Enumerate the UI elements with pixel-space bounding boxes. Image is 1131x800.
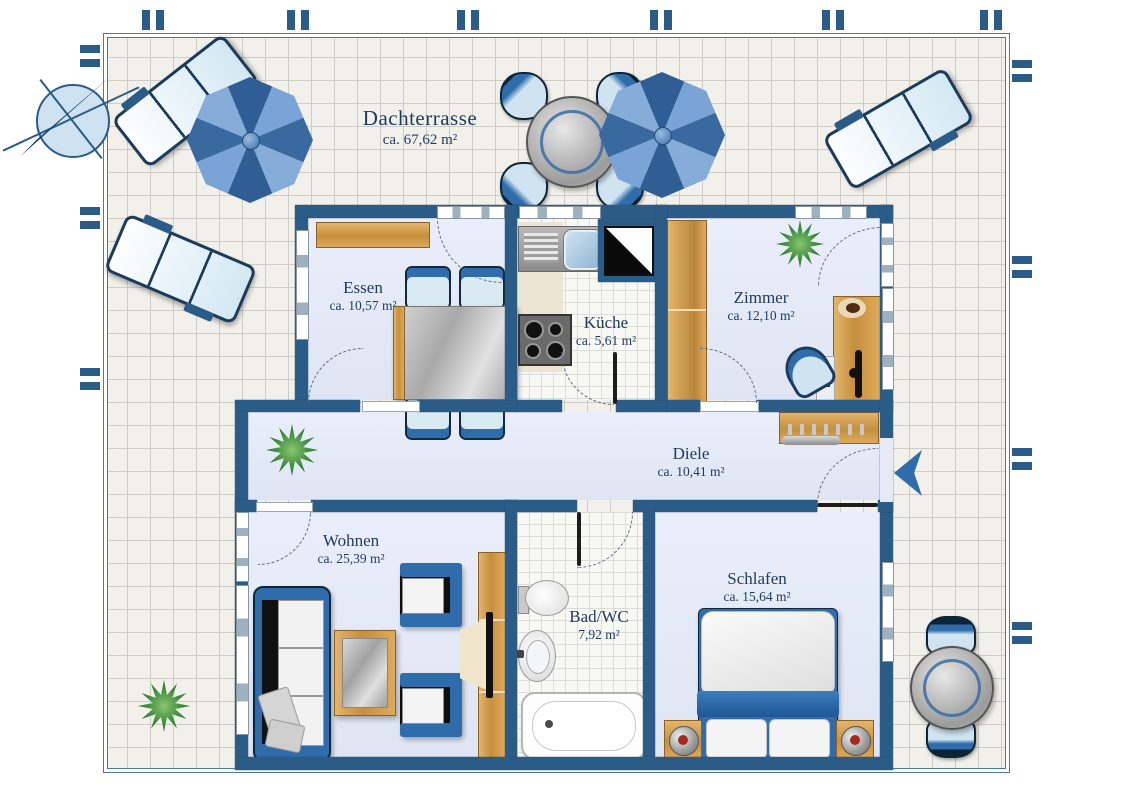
label-essen: Essen ca. 10,57 m² [329,277,396,315]
lamp [850,735,860,745]
room-area: ca. 10,41 m² [657,464,724,481]
wall [633,500,655,512]
wall [655,205,667,400]
toilet [525,580,569,616]
office-chair-knob [849,368,859,378]
wall [655,500,817,512]
room-area: ca. 10,57 m² [329,298,396,315]
bathtub-drain [545,720,553,728]
lamp [678,735,688,745]
railing-post [650,10,672,30]
railing-post [80,207,100,229]
nightstand [664,720,702,760]
wall [667,400,700,412]
desk-item [846,303,860,313]
wall [311,500,517,512]
railing-post [80,368,100,390]
bed-pillow [706,719,767,759]
terrace-area: ca. 67,62 m² [363,131,477,150]
room-name: Bad/WC [569,606,629,627]
window [236,585,249,735]
room-name: Diele [657,443,724,464]
tv [486,612,493,698]
room-name: Zimmer [727,287,794,308]
armchair [400,563,462,627]
bathtub [521,692,647,760]
railing-post [822,10,844,30]
label-dachterrasse: Dachterrasse ca. 67,62 m² [363,105,477,150]
railing-post [457,10,479,30]
door-leaf [362,401,420,412]
bed-duvet [701,611,835,697]
coffee-table [334,630,396,716]
window [296,230,309,340]
railing-post [980,10,1002,30]
label-zimmer: Zimmer ca. 12,10 m² [727,287,794,325]
window [795,206,867,219]
bed-blanket-band [697,691,839,717]
window [882,562,894,662]
sideboard [316,222,430,248]
railing-post [287,10,309,30]
room-name: Küche [576,312,636,333]
label-wohnen: Wohnen ca. 25,39 m² [317,530,384,568]
wall [235,500,257,512]
dining-chair [405,266,451,310]
floor-plan: Dachterrasse ca. 67,62 m² Essen ca. 10,5… [0,0,1131,800]
railing-post [142,10,164,30]
sink-basin [564,230,602,270]
window [882,288,894,390]
entrance-opening [880,438,893,502]
room-name: Essen [329,277,396,298]
wall [505,512,517,757]
wall [505,205,517,400]
label-diele: Diele ca. 10,41 m² [657,443,724,481]
umbrella-pole [242,132,260,150]
label-schlafen: Schlafen ca. 15,64 m² [723,568,790,606]
bistro-table [910,646,994,730]
room-area: 7,92 m² [569,627,629,644]
room-name: Schlafen [723,568,790,589]
railing-post [1012,448,1032,470]
label-bad: Bad/WC 7,92 m² [569,606,629,644]
umbrella-pole [654,127,672,145]
wall [235,757,893,770]
dining-table [393,306,517,400]
wall [616,400,667,412]
nightstand [836,720,874,760]
railing-post [1012,622,1032,644]
wall [517,400,562,412]
room-area: ca. 25,39 m² [317,551,384,568]
terrace-door-zimmer [881,223,894,287]
room-name: Wohnen [317,530,384,551]
railing-post [80,45,100,67]
label-kueche: Küche ca. 5,61 m² [576,312,636,350]
room-area: ca. 12,10 m² [727,308,794,325]
coat-hooks [788,424,868,435]
sink-drainer [524,233,558,263]
bed-pillow [769,719,830,759]
wall [418,400,517,412]
window [236,512,249,582]
sofa [253,586,331,762]
room-area: ca. 5,61 m² [576,333,636,350]
dining-table-edge [393,306,405,400]
double-bed [698,608,838,762]
room-area: ca. 15,64 m² [723,589,790,606]
installation-shaft-icon [604,226,654,276]
window [519,206,601,219]
armchair [400,673,462,737]
door-leaf [256,502,313,512]
coat-rack-bar [782,436,840,445]
wall [505,500,577,512]
wall [643,512,655,757]
terrace-name: Dachterrasse [363,105,477,131]
railing-post [1012,60,1032,82]
wall [757,400,893,412]
railing-post [1012,256,1032,278]
basin-tap [516,650,524,658]
